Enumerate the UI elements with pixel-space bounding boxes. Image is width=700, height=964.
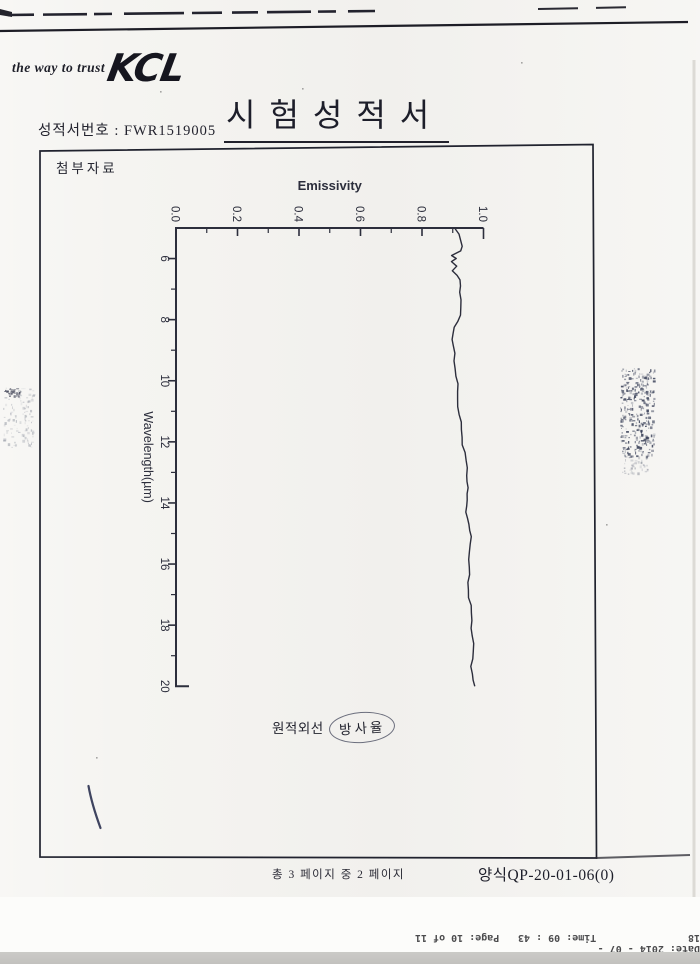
attachment-label: 첨부자료 — [56, 157, 118, 177]
annotation-circled-text: 방사율 — [328, 710, 396, 746]
page-title: 시험성적서 — [224, 90, 449, 143]
emissivity-tick-label: 0.8 — [415, 206, 427, 222]
page-count-text: 총 3 페이지 중 2 페이지 — [272, 866, 405, 882]
emissivity-tick-label: 0.0 — [169, 206, 181, 222]
kcl-tagline: the way to trust — [12, 60, 105, 76]
fax-date-text: Date: 2014 - 07 - 18 — [597, 932, 700, 954]
scanner-edge-band — [0, 952, 700, 964]
stamp-smudge-right-tail — [622, 456, 649, 475]
wavelength-tick-label: 8 — [158, 316, 170, 322]
emissivity-chart: 0.00.20.40.60.81.0Emissivity681012141618… — [120, 170, 520, 715]
wavelength-tick-label: 12 — [158, 435, 170, 448]
emissivity-tick-label: 0.6 — [353, 206, 365, 222]
wavelength-tick-label: 18 — [158, 619, 170, 632]
emissivity-tick-label: 0.2 — [230, 206, 242, 222]
emissivity-axis-title: Emissivity — [298, 178, 363, 193]
scan-dashed-line — [8, 11, 375, 15]
emissivity-curve — [452, 228, 475, 686]
wavelength-tick-label: 20 — [158, 680, 170, 693]
chart-axes — [176, 228, 484, 686]
scanned-test-report-page: the way to trust KCL 성적서번호 : FWR1519005 … — [0, 0, 700, 964]
scan-dash-right — [538, 7, 640, 9]
chart-annotation: 원적외선방사율 — [272, 712, 395, 743]
wavelength-tick-label: 16 — [158, 558, 170, 571]
scan-dot — [160, 91, 162, 93]
wavelength-axis-title: Wavelength(µm) — [141, 411, 155, 503]
scan-dot — [521, 62, 523, 64]
fax-strip — [0, 897, 700, 952]
emissivity-tick-label: 0.4 — [292, 206, 304, 223]
wavelength-tick-label: 14 — [158, 497, 170, 510]
report-number: 성적서번호 : FWR1519005 — [38, 119, 216, 140]
kcl-logo: KCL — [104, 46, 188, 90]
scan-dot — [96, 757, 98, 759]
fax-page-text: Page: 10 of 11 — [415, 932, 499, 943]
smudge-left-dark — [4, 388, 21, 398]
pen-stroke-mark — [89, 786, 101, 828]
scan-dot — [606, 524, 608, 526]
scan-bottom-line — [596, 855, 690, 858]
wavelength-tick-label: 10 — [158, 374, 170, 387]
emissivity-tick-label: 1.0 — [476, 206, 488, 222]
scan-top-line — [0, 22, 688, 31]
annotation-text: 원적외선 — [272, 721, 324, 736]
wavelength-tick-label: 6 — [158, 255, 170, 261]
form-number: 양식QP-20-01-06(0) — [478, 863, 614, 885]
stamp-smudge-right — [620, 368, 656, 458]
fax-time-text: Time: 09 : 43 — [518, 932, 596, 943]
